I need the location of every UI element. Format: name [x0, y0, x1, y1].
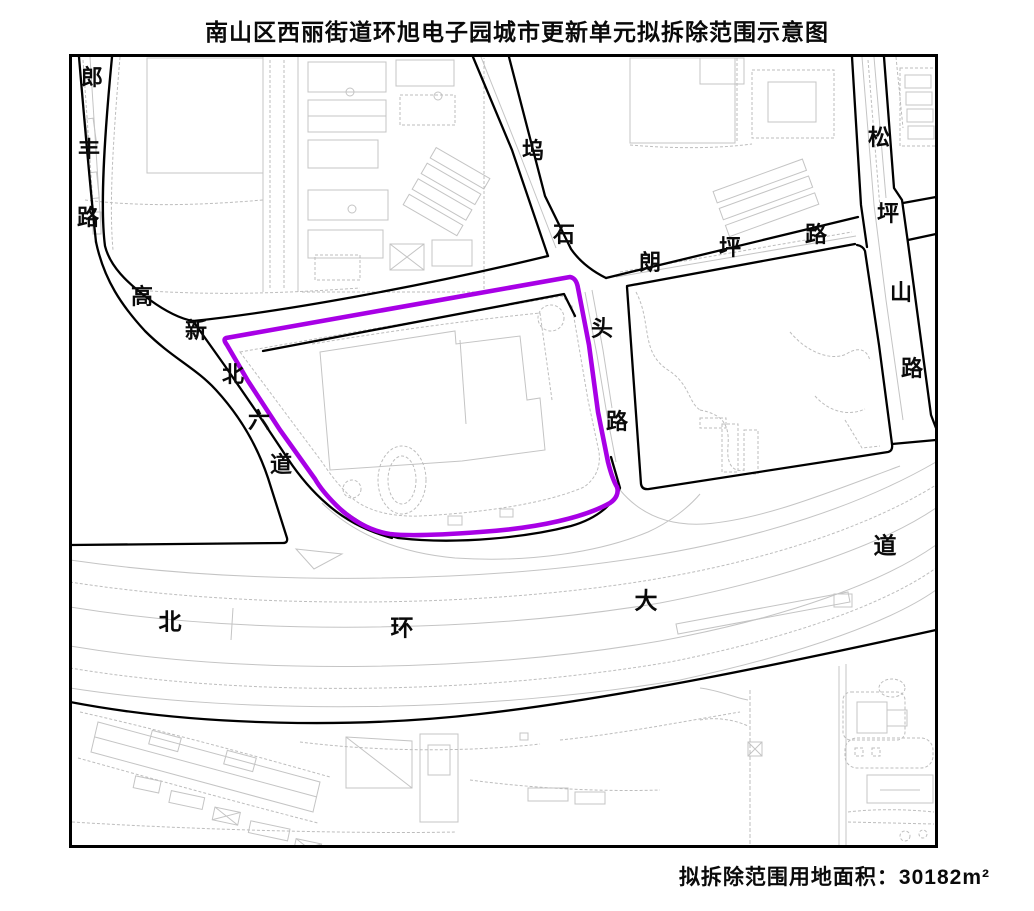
road-label-char: 北: [222, 364, 244, 386]
road-label-char: 道: [874, 535, 897, 558]
road-label-char: 坞: [522, 140, 544, 162]
road-label-char: 大: [635, 590, 658, 613]
road-label-char: 郎: [81, 67, 103, 89]
road-label-char: 头: [591, 318, 613, 340]
langpinglu-east-stub-south: [908, 234, 936, 240]
road-lines-layer: [70, 57, 936, 723]
road-label-char: 山: [890, 282, 912, 304]
road-label-char: 丰: [78, 139, 100, 161]
beihuan-south-edge: [70, 630, 936, 723]
road-label-char: 路: [805, 224, 827, 246]
east-parcel-outline: [627, 245, 892, 489]
road-label-char: 道: [270, 454, 292, 476]
beihuan-north-edge-east: [892, 440, 936, 444]
langpinglu-east-stub-north: [903, 197, 936, 203]
road-label-char: 新: [185, 320, 207, 342]
road-label-char: 石: [553, 224, 575, 246]
map-frame: [71, 56, 937, 847]
road-label-char: 高: [131, 286, 153, 308]
road-label-char: 六: [248, 410, 270, 432]
langfenglu-east-edge: [103, 57, 193, 321]
road-label-char: 环: [391, 617, 414, 640]
road-label-char: 路: [77, 207, 99, 229]
schematic-map-page: 南山区西丽街道环旭电子园城市更新单元拟拆除范围示意图: [0, 0, 1034, 911]
road-label-char: 坪: [719, 237, 741, 259]
road-label-char: 坪: [877, 203, 899, 225]
road-label-char: 路: [606, 411, 628, 433]
area-caption: 拟拆除范围用地面积：30182m²: [679, 861, 990, 891]
road-label-char: 朗: [639, 252, 661, 274]
road-label-char: 北: [159, 611, 182, 634]
road-label-char: 路: [901, 358, 923, 380]
road-label-char: 松: [868, 127, 890, 149]
